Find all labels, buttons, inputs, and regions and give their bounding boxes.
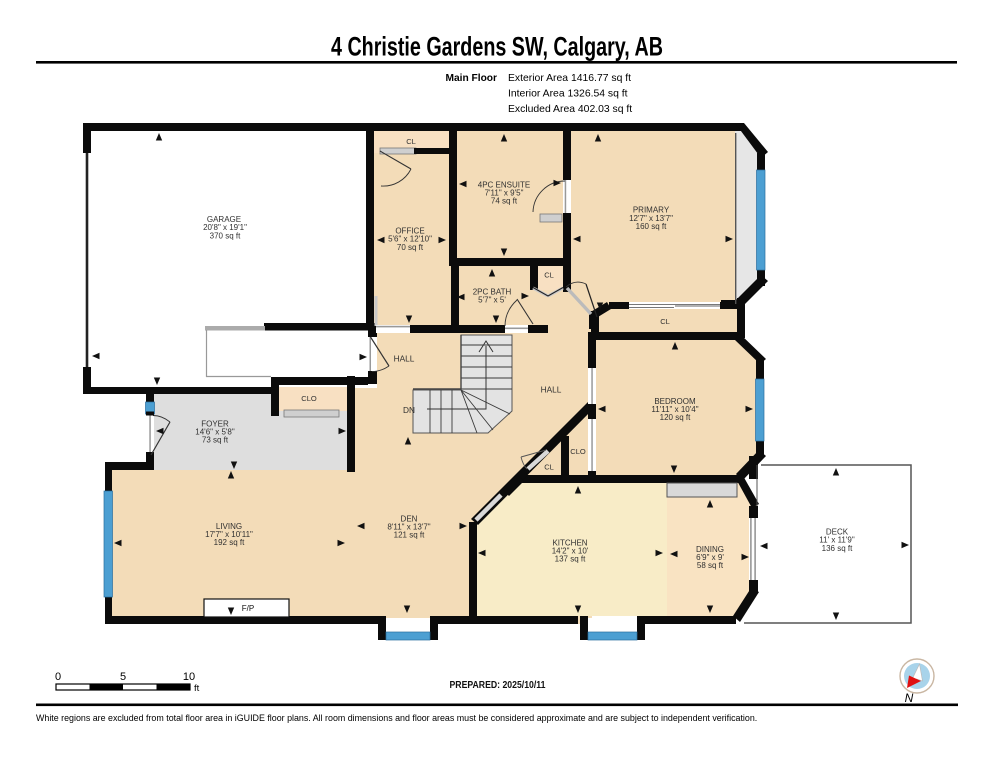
svg-text:Main Floor: Main Floor xyxy=(446,73,498,84)
svg-text:73 sq ft: 73 sq ft xyxy=(202,436,229,445)
svg-text:136 sq ft: 136 sq ft xyxy=(822,544,853,553)
svg-text:121 sq ft: 121 sq ft xyxy=(394,531,425,540)
svg-text:N: N xyxy=(905,691,914,705)
svg-text:58 sq ft: 58 sq ft xyxy=(697,561,724,570)
svg-text:ft: ft xyxy=(194,683,200,694)
svg-text:10: 10 xyxy=(183,671,195,683)
svg-text:192 sq ft: 192 sq ft xyxy=(214,538,245,547)
svg-text:CL: CL xyxy=(406,137,416,146)
svg-text:4 Christie Gardens SW, Calgary: 4 Christie Gardens SW, Calgary, AB xyxy=(331,32,663,62)
svg-text:Exterior Area 1416.77 sq ft: Exterior Area 1416.77 sq ft xyxy=(508,73,631,84)
svg-text:CL: CL xyxy=(544,271,554,280)
svg-text:PREPARED: 2025/10/11: PREPARED: 2025/10/11 xyxy=(450,680,546,691)
svg-text:CLO: CLO xyxy=(301,394,317,403)
svg-text:120 sq ft: 120 sq ft xyxy=(660,413,691,422)
svg-text:CL: CL xyxy=(544,463,554,472)
svg-text:137 sq ft: 137 sq ft xyxy=(555,555,586,564)
svg-text:CLO: CLO xyxy=(570,447,586,456)
svg-text:F/P: F/P xyxy=(242,604,254,613)
svg-text:HALL: HALL xyxy=(541,385,562,395)
svg-text:HALL: HALL xyxy=(394,354,415,364)
svg-text:White regions are excluded fro: White regions are excluded from total fl… xyxy=(36,713,757,723)
svg-text:70 sq ft: 70 sq ft xyxy=(397,243,424,252)
svg-text:74 sq ft: 74 sq ft xyxy=(491,197,518,206)
svg-text:5'7" x 5': 5'7" x 5' xyxy=(478,295,506,304)
svg-text:Excluded Area 402.03 sq ft: Excluded Area 402.03 sq ft xyxy=(508,104,632,115)
svg-text:370 sq ft: 370 sq ft xyxy=(210,231,241,240)
svg-text:Interior Area 1326.54 sq ft: Interior Area 1326.54 sq ft xyxy=(508,89,628,100)
svg-text:DN: DN xyxy=(403,405,415,415)
svg-text:0: 0 xyxy=(55,671,61,683)
svg-text:160 sq ft: 160 sq ft xyxy=(636,222,667,231)
svg-text:CL: CL xyxy=(660,317,670,326)
svg-text:5: 5 xyxy=(120,671,126,683)
